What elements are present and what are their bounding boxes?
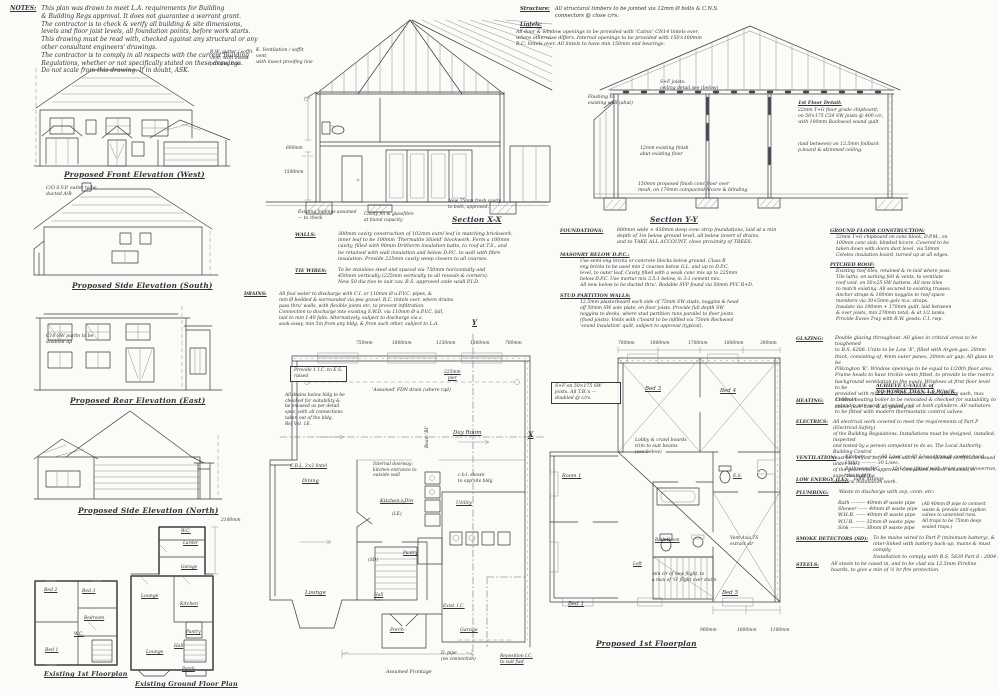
dim-label: 2100mm	[221, 518, 241, 524]
foundations-spec: FOUNDATIONS: 600mm wide × 450mm deep con…	[560, 228, 808, 247]
heating-heading: HEATING:	[796, 398, 830, 417]
dim-label: 1800mm	[470, 341, 490, 347]
plumbing-spec: PLUMBING: Waste to discharge with svp, c…	[796, 490, 998, 496]
steels-body: All steels to be cased in, and to be cla…	[831, 562, 976, 574]
lintels-heading: Lintels:	[520, 22, 542, 29]
roof-heading: PITCHED ROOF:	[830, 262, 875, 268]
room-label: Larder	[183, 541, 198, 547]
lobby-note: Lobby & crawl boards trim to suit beams …	[635, 438, 705, 456]
stud-heading: STUD PARTITION WALLS:	[560, 293, 631, 299]
room-label: Room 1	[562, 473, 581, 480]
units-note: c.b.l. shown to opp'site bldg	[458, 473, 493, 484]
ties-heading: TIE WIRES:	[295, 268, 333, 287]
yy-floor-detail-heading: 1st Floor Detail:	[798, 100, 842, 106]
structure-heading: Structure:	[520, 6, 550, 20]
stair-head-note: min clr of new flight, to a max of 'G' f…	[652, 572, 720, 583]
fdn-drain-note: 'Assumed' FDN drain (where rqd)	[372, 388, 451, 394]
section-marker-y: Y	[472, 318, 477, 327]
dim-label: 1500mm	[284, 170, 304, 176]
dim-label: 600mm	[286, 146, 303, 152]
plumbing-heading: PLUMBING:	[796, 490, 834, 496]
room-label: Day Room	[453, 430, 482, 437]
le-token: (LE)	[392, 512, 402, 518]
steels-heading: STEELS:	[796, 562, 826, 574]
rear-elevation-drawing	[32, 300, 227, 396]
proposed-ff-caption: Proposed 1st Floorplan	[596, 639, 697, 649]
existing-ground-floor-plan	[126, 524, 218, 676]
dim-label: 1800mm	[650, 341, 670, 347]
joists-note: S+F on 50×175 SW joists. All T.B.'s — do…	[551, 382, 621, 404]
dim-label: 900mm	[700, 628, 717, 634]
cbl-note: C.B.L. 3×2 lintel	[290, 464, 327, 470]
dim-label: 700mm	[618, 341, 635, 347]
frontage-label: Assumed Frontage	[386, 670, 432, 676]
existing-ff-caption: Existing 1st Floorplan	[44, 670, 128, 678]
room-label: Bed 5	[722, 590, 738, 597]
dim-label: 1100mm	[770, 628, 790, 634]
room-label: Bed 1	[568, 601, 584, 608]
architectural-drawing-sheet: NOTES: This plan was drawn to meet L.A. …	[0, 0, 999, 695]
dpipe-note: D. pipe (no connection)	[441, 651, 476, 662]
dim-label: 1800mm	[724, 341, 744, 347]
room-label: Bed 3	[82, 589, 95, 595]
dim-label: 750mm	[356, 341, 373, 347]
plumbing-intro: Waste to discharge with svp, conn. etc:	[839, 490, 934, 496]
room-label: Dining	[302, 478, 319, 485]
existing-ic-label: Exist. I.C.	[443, 604, 465, 610]
room-label: Kitchen	[180, 602, 198, 608]
xx-fill-note: Cavity fill & glassfibre at found capaci…	[364, 212, 424, 223]
low-energy-spec: LOW ENERGY (LE): light fittings	[796, 477, 998, 483]
gfc-body: 22mm T+G chipboard on conc block, D.P.M.…	[836, 235, 996, 259]
low-energy-heading: LOW ENERGY (LE):	[796, 477, 849, 483]
yy-joists-note: S+F joists: ceiling detail see (below)	[660, 80, 740, 92]
room-label: W.C.	[181, 529, 191, 535]
foundations-body: 600mm wide × 450mm deep conc strip found…	[617, 228, 776, 247]
room-label: W.C.	[74, 632, 84, 638]
room-label: Bed 3	[645, 386, 661, 393]
dim-label: 300mm	[760, 341, 777, 347]
room-label: Lounge	[146, 650, 163, 656]
ic-note: Provide 1 I.C. to E.S. raised	[290, 366, 347, 382]
walls-heading: WALLS:	[295, 232, 333, 263]
vent-axia-note: Vent-Axia TS extract air	[730, 536, 770, 547]
room-label: Garage	[460, 628, 478, 634]
xx-cavity-note: New 75mm fresh cavity to both, approved.	[448, 199, 518, 210]
section-marker-x: X	[528, 430, 533, 439]
room-label: Bed 2	[44, 588, 57, 594]
south-elevation-caption: Proposed Side Elevation (South)	[72, 281, 213, 291]
dim-label: 1150mm	[436, 341, 456, 347]
glazing-uvalue: ACHIEVE U-VALUE of NO WORSE THAN 1.6 W/m…	[876, 383, 996, 395]
stud-body: 12.5mm plasterboard each side of 75mm SW…	[580, 300, 805, 330]
ties-body: To be stainless steel and spaced via 750…	[338, 268, 488, 287]
heating-body: Central heating boiler to be relocated &…	[835, 398, 996, 417]
roof-body: Existing roof tiles, retained & re-laid …	[836, 269, 996, 323]
loft-label: Loft	[633, 562, 642, 568]
foundations-heading: FOUNDATIONS:	[560, 228, 612, 247]
front-elevation-caption: Proposed Front Elevation (West)	[64, 170, 205, 180]
room-label: Porch	[182, 667, 195, 673]
room-label: Hall	[174, 644, 183, 650]
section-xx-caption: Section X-X	[452, 215, 502, 225]
room-label: Hall	[374, 593, 383, 599]
beam-label: Beam 'B1'	[425, 426, 431, 448]
walls-body: 300mm cavity construction of 102mm extnl…	[338, 232, 513, 263]
smoke-body: To be mains wired to Part P (minimum bat…	[873, 536, 998, 561]
ties-spec: TIE WIRES: To be stainless steel and spa…	[295, 268, 563, 287]
room-label: Pantry	[403, 551, 418, 557]
room-label: Utility	[456, 500, 472, 507]
walls-spec: WALLS: 300mm cavity construction of 102m…	[295, 232, 563, 263]
room-label: Bath Room	[655, 538, 680, 544]
smoke-heading: SMOKE DETECTORS (SD):	[796, 536, 868, 561]
internal-door-note: Internal doorway: kitchen entrance to ou…	[373, 462, 417, 479]
front-elevation-drawing	[30, 62, 235, 172]
section-xx-drawing	[262, 6, 552, 212]
yy-finish-note: 12mm existing finish abut existing floor	[640, 146, 730, 158]
north-elevation-caption: Proposed Side Elevation (North)	[78, 506, 219, 516]
room-label: Garage	[181, 565, 197, 571]
room-label: Bed 1	[45, 648, 58, 654]
reposition-ic-note: Reposition I.C. to suit fwd	[500, 654, 533, 665]
yy-floor-note: 150mm proposed finish conc floor over me…	[638, 182, 773, 194]
room-label: Lounge	[141, 594, 158, 600]
room-label: Bedroom	[84, 616, 104, 622]
dim-label: 1800mm	[737, 628, 757, 634]
structure-note: Structure: All structural timbers to be …	[520, 6, 770, 20]
south-elevation-drawing	[32, 183, 222, 281]
yy-flashing-note: Flashing to existing wall (abut)	[588, 95, 640, 107]
room-label: Porch	[390, 628, 404, 634]
existing-gf-caption: Existing Ground Floor Plan	[135, 680, 238, 688]
room-label: Lounge	[305, 590, 326, 597]
sd-token: (SD)	[368, 558, 378, 564]
smoke-spec: SMOKE DETECTORS (SD): To be mains wired …	[796, 536, 998, 561]
pier-note: 225mm pier	[444, 370, 461, 381]
steels-spec: STEELS: All steels to be cased in, and t…	[796, 562, 998, 574]
yy-floor-detail-body: 22mm T+G floor grade chipboard, on 50×17…	[798, 108, 918, 126]
yy-pboard-note: (laid between) on 12.5mm foilback p.boar…	[798, 142, 920, 154]
dim-label: 700mm	[505, 341, 522, 347]
purlin-note: C16 SW purlin to be doubled up	[46, 334, 93, 346]
heating-spec: HEATING: Central heating boiler to be re…	[796, 398, 996, 417]
room-label: E.S.	[733, 474, 742, 480]
masonry-heading: MASONRY BELOW D.P.C.:	[560, 252, 630, 258]
room-label: Kitchen / Din	[380, 498, 413, 505]
low-energy-body: light fittings	[854, 477, 884, 483]
drains-spec: DRAINS: All foul water to discharge with…	[244, 292, 559, 328]
room-label: Bed 4	[720, 388, 736, 395]
structure-body: All structural timbers to be jointed via…	[555, 6, 718, 20]
drain-check-note: All drains below bldg to be checked for …	[285, 393, 349, 427]
plumbing-note: (All 40mm Ø pipe to connect waste & prov…	[922, 502, 998, 531]
north-elevation-drawing	[32, 405, 227, 505]
dim-label: 1700mm	[688, 341, 708, 347]
masonry-body: Use semi-eng bricks or concrete blocks b…	[580, 259, 805, 289]
drains-heading: DRAINS:	[244, 292, 274, 328]
gfc-heading: GROUND FLOOR CONSTRUCTION:	[830, 228, 925, 234]
room-label: Pantry	[186, 630, 201, 636]
section-yy-caption: Section Y-Y	[650, 215, 698, 225]
drains-body: All foul water to discharge with C.I. or…	[279, 292, 453, 328]
dim-label: 1800mm	[392, 341, 412, 347]
xx-footings-note: Existing footings assumed — to check	[298, 210, 360, 221]
